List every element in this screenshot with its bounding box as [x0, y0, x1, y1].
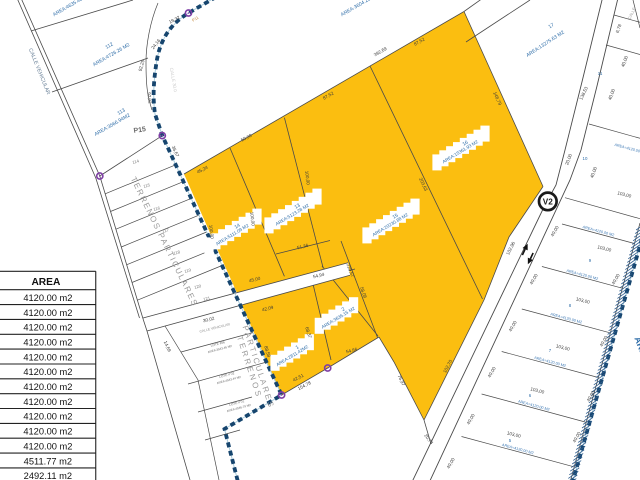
svg-text:4120.00 m2: 4120.00 m2	[23, 338, 72, 348]
svg-text:4120.00 m2: 4120.00 m2	[23, 441, 72, 451]
svg-text:4120.00 m2: 4120.00 m2	[23, 308, 72, 318]
svg-text:4120.00 m2: 4120.00 m2	[23, 352, 72, 362]
svg-text:4511.77 m2: 4511.77 m2	[24, 456, 72, 466]
svg-text:2492.11 m2: 2492.11 m2	[24, 471, 72, 480]
svg-text:4120.00 m2: 4120.00 m2	[23, 367, 72, 377]
svg-text:4120.00 m2: 4120.00 m2	[23, 323, 72, 333]
svg-text:4120.00 m2: 4120.00 m2	[23, 382, 72, 392]
svg-text:11: 11	[598, 71, 603, 76]
svg-text:10: 10	[583, 156, 588, 161]
svg-text:V2: V2	[543, 198, 553, 207]
svg-text:AREA: AREA	[31, 277, 61, 288]
svg-text:4120.00 m2: 4120.00 m2	[23, 427, 72, 437]
svg-text:4120.00 m2: 4120.00 m2	[23, 412, 72, 422]
svg-text:4120.00 m2: 4120.00 m2	[23, 397, 72, 407]
svg-text:92,02: 92,02	[147, 92, 153, 104]
svg-text:4120.00 m2: 4120.00 m2	[23, 293, 72, 303]
